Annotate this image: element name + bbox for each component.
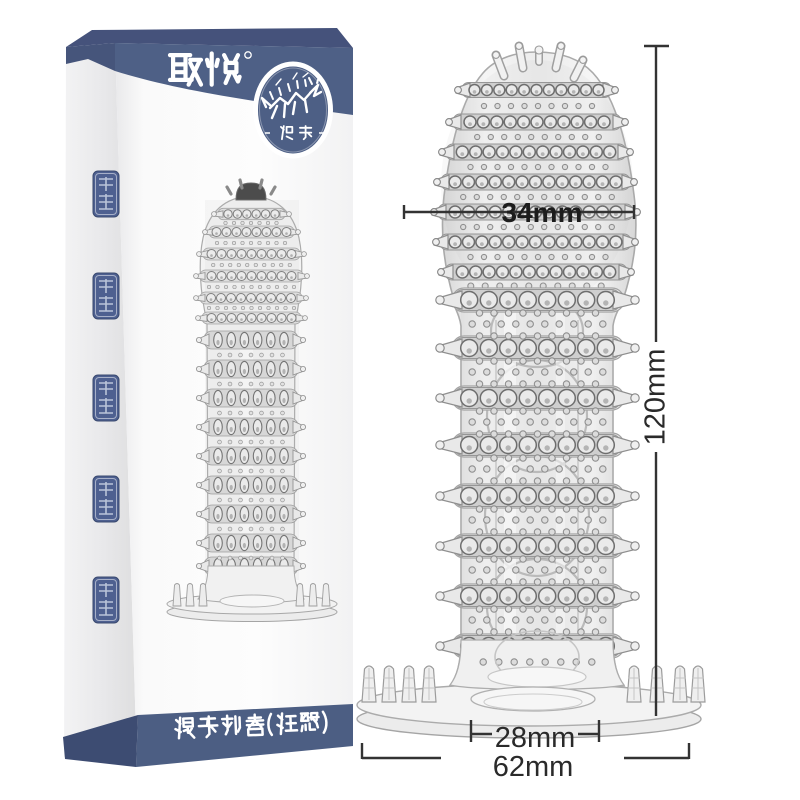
svg-text:34mm: 34mm xyxy=(502,197,583,228)
svg-text:120mm: 120mm xyxy=(640,349,672,446)
svg-text:28mm: 28mm xyxy=(495,722,576,754)
svg-text:62mm: 62mm xyxy=(493,751,574,783)
